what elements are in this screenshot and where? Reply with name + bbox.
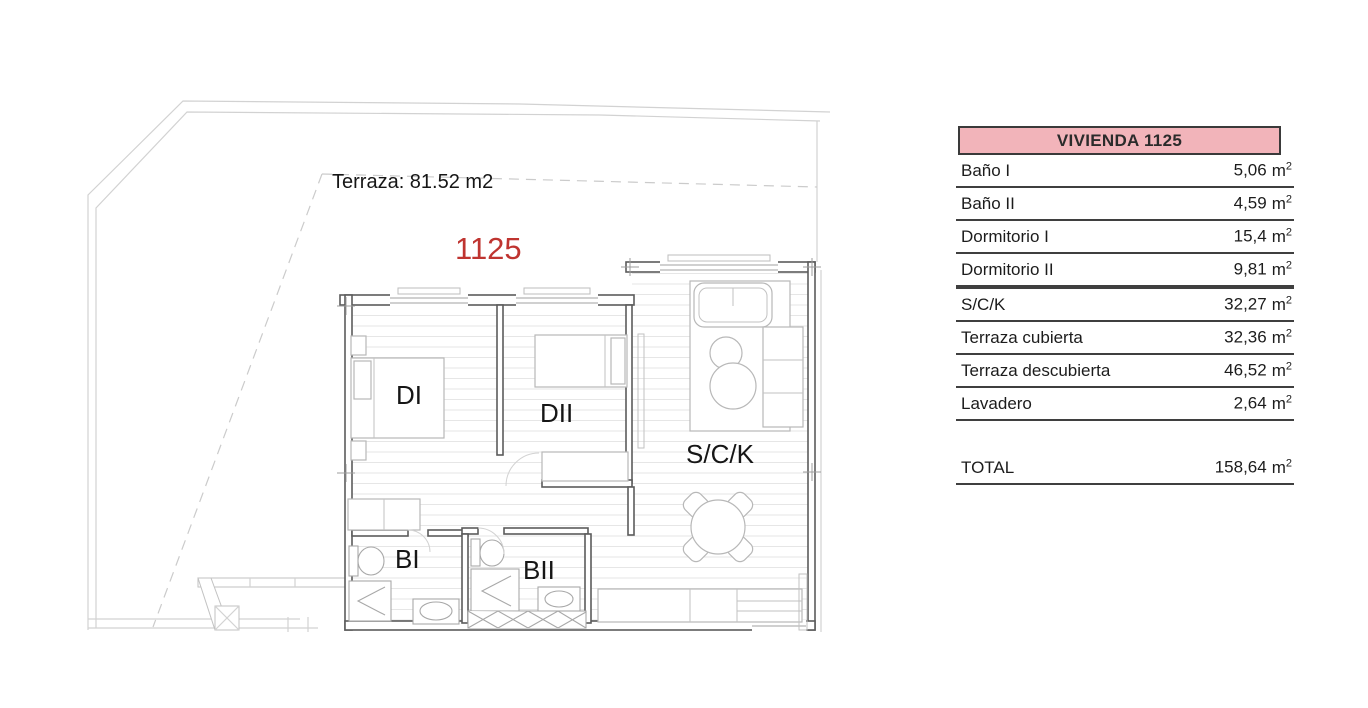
row-label: Dormitorio I: [961, 227, 1049, 247]
unit-number-label: 1125: [455, 231, 522, 266]
table-row: S/C/K 32,27m2: [956, 289, 1294, 322]
table-total-row: TOTAL 158,64m2: [956, 452, 1294, 485]
row-value: 32,36: [1224, 328, 1267, 347]
laundry-hatch: [468, 611, 586, 628]
room-label-bi: BI: [395, 544, 420, 574]
terrace-label: Terraza: 81.52 m2: [332, 171, 493, 193]
row-label: Terraza cubierta: [961, 328, 1083, 348]
row-label: Lavadero: [961, 394, 1032, 414]
room-label-dii: DII: [540, 398, 573, 428]
table-spacer: [956, 421, 1294, 452]
row-label: Dormitorio II: [961, 260, 1054, 280]
row-value: 5,06: [1234, 161, 1267, 180]
total-label: TOTAL: [961, 458, 1014, 478]
dining-set: [680, 489, 755, 564]
row-value: 4,59: [1234, 194, 1267, 213]
table-row: Terraza descubierta 46,52m2: [956, 355, 1294, 388]
table-header: VIVIENDA 1125: [958, 126, 1281, 155]
table-row: Terraza cubierta 32,36m2: [956, 322, 1294, 355]
area-table: VIVIENDA 1125 Baño I 5,06m2 Baño II 4,59…: [956, 126, 1294, 485]
row-label: Terraza descubierta: [961, 361, 1110, 381]
row-label: S/C/K: [961, 295, 1005, 315]
row-label: Baño I: [961, 161, 1010, 181]
table-row: Baño I 5,06m2: [956, 155, 1294, 188]
table-row: Baño II 4,59m2: [956, 188, 1294, 221]
room-label-sck: S/C/K: [686, 439, 755, 469]
row-value: 32,27: [1224, 295, 1267, 314]
room-label-di: DI: [396, 380, 422, 410]
total-value: 158,64: [1215, 458, 1267, 477]
table-row: Lavadero 2,64m2: [956, 388, 1294, 421]
row-value: 15,4: [1234, 227, 1267, 246]
row-value: 9,81: [1234, 260, 1267, 279]
row-label: Baño II: [961, 194, 1015, 214]
row-value: 2,64: [1234, 394, 1267, 413]
table-row: Dormitorio I 15,4m2: [956, 221, 1294, 254]
room-label-bii: BII: [523, 555, 555, 585]
row-value: 46,52: [1224, 361, 1267, 380]
table-row: Dormitorio II 9,81m2: [956, 254, 1294, 289]
parapet: [198, 578, 345, 630]
